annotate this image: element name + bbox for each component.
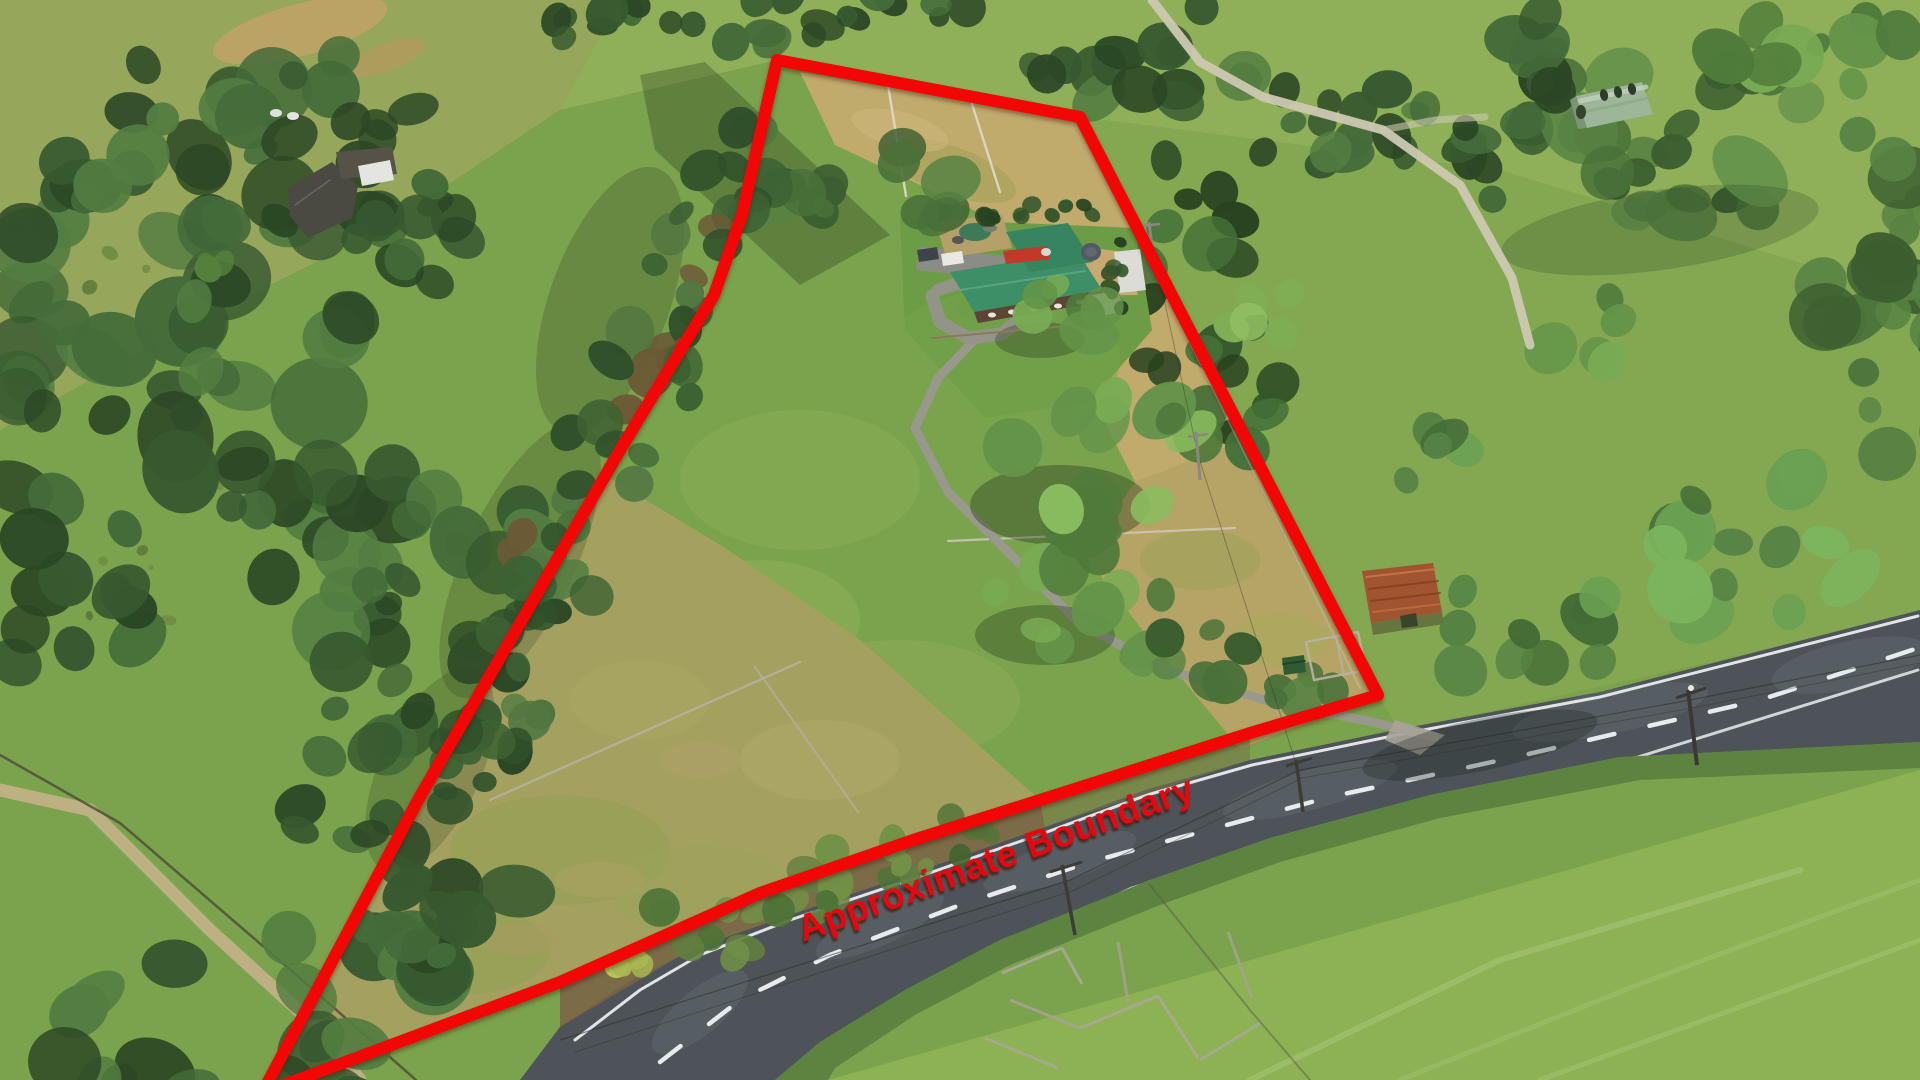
terrain-layers bbox=[0, 0, 1920, 1080]
scene-svg: Approximate Boundary bbox=[0, 0, 1920, 1080]
aerial-property-photo: Approximate Boundary bbox=[0, 0, 1920, 1080]
